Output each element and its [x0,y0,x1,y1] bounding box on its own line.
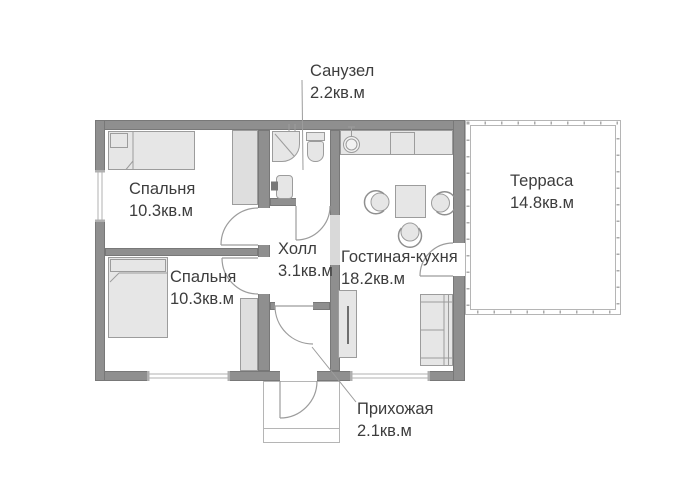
washbasin-tap-icon [271,182,278,191]
room-name: Санузел [310,60,374,82]
chair-bottom [399,223,422,247]
room-name: Холл [278,238,333,260]
room-name: Спальня [170,266,236,288]
room-label-bathroom: Санузел 2.2кв.м [310,60,374,104]
room-area: 2.2кв.м [310,82,374,104]
room-area: 2.1кв.м [357,420,433,442]
single-bed-fold [126,161,133,170]
room-label-hall: Холл 3.1кв.м [278,238,333,282]
entrance-porch [264,382,340,443]
room-area: 18.2кв.м [341,268,458,290]
room-label-living-kitchen: Гостиная-кухня 18.2кв.м [341,246,458,290]
kitchen-sink [344,127,360,153]
room-label-terrace: Терраса 14.8кв.м [510,170,574,214]
room-name: Спальня [129,178,195,200]
door-arc-entrance [280,381,317,418]
door-arc-entry-hall [275,306,313,344]
room-area: 14.8кв.м [510,192,574,214]
door-swings [221,206,453,418]
room-area: 10.3кв.м [170,288,236,310]
room-name: Гостиная-кухня [341,246,458,268]
room-area: 10.3кв.м [129,200,195,222]
chair-right [432,192,457,215]
room-label-bedroom-top: Спальня 10.3кв.м [129,178,195,222]
leader-entry [312,347,356,402]
room-name: Терраса [510,170,574,192]
terrace-border [466,121,621,315]
dining-chairs [364,191,456,247]
chair-left [364,191,389,214]
floor-plan: Санузел 2.2кв.м Спальня 10.3кв.м Спальня… [0,0,700,502]
room-label-entry: Прихожая 2.1кв.м [357,398,433,442]
door-arc-bedroom-top [221,208,258,245]
leader-bathroom [302,80,303,170]
double-bed-fold [110,273,119,282]
room-area: 3.1кв.м [278,260,333,282]
room-label-bedroom-bottom: Спальня 10.3кв.м [170,266,236,310]
room-name: Прихожая [357,398,433,420]
shower-door-line [275,134,294,156]
door-arc-bathroom [296,206,330,240]
